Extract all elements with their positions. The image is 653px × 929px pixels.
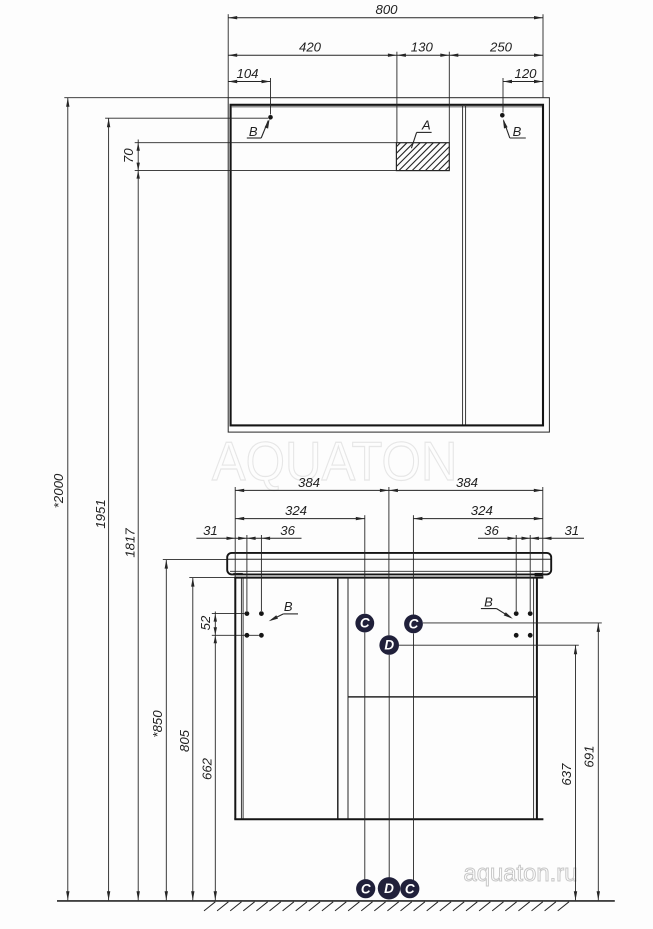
svg-text:D: D: [384, 881, 394, 896]
svg-text:384: 384: [456, 475, 478, 490]
svg-text:800: 800: [375, 2, 398, 17]
svg-text:70: 70: [121, 148, 136, 163]
svg-text:1951: 1951: [93, 499, 108, 528]
svg-text:36: 36: [280, 523, 295, 538]
svg-text:384: 384: [298, 475, 320, 490]
svg-text:1817: 1817: [122, 528, 137, 558]
svg-text:637: 637: [559, 763, 574, 786]
svg-text:AQUATON: AQUATON: [212, 430, 458, 492]
svg-text:52: 52: [198, 615, 213, 630]
svg-text:36: 36: [484, 523, 499, 538]
svg-text:*850: *850: [150, 710, 165, 738]
svg-text:*2000: *2000: [51, 473, 66, 508]
svg-text:130: 130: [411, 40, 434, 55]
svg-text:B: B: [484, 594, 493, 609]
svg-text:B: B: [249, 124, 258, 139]
svg-text:250: 250: [489, 40, 513, 55]
svg-text:420: 420: [299, 40, 322, 55]
svg-text:805: 805: [177, 729, 192, 752]
svg-text:C: C: [360, 616, 370, 631]
svg-text:662: 662: [199, 757, 214, 780]
svg-text:aquaton.ru: aquaton.ru: [464, 860, 578, 887]
svg-text:31: 31: [203, 523, 218, 538]
svg-text:C: C: [405, 881, 415, 896]
svg-text:C: C: [361, 881, 371, 896]
svg-text:B: B: [284, 599, 293, 614]
svg-text:691: 691: [582, 746, 597, 768]
svg-text:104: 104: [236, 66, 258, 81]
svg-text:C: C: [409, 617, 419, 632]
svg-text:324: 324: [471, 503, 493, 518]
svg-text:A: A: [421, 117, 431, 132]
svg-text:120: 120: [514, 66, 537, 81]
svg-text:31: 31: [564, 523, 579, 538]
svg-text:324: 324: [285, 503, 307, 518]
svg-text:B: B: [513, 124, 522, 139]
svg-text:D: D: [384, 638, 394, 653]
